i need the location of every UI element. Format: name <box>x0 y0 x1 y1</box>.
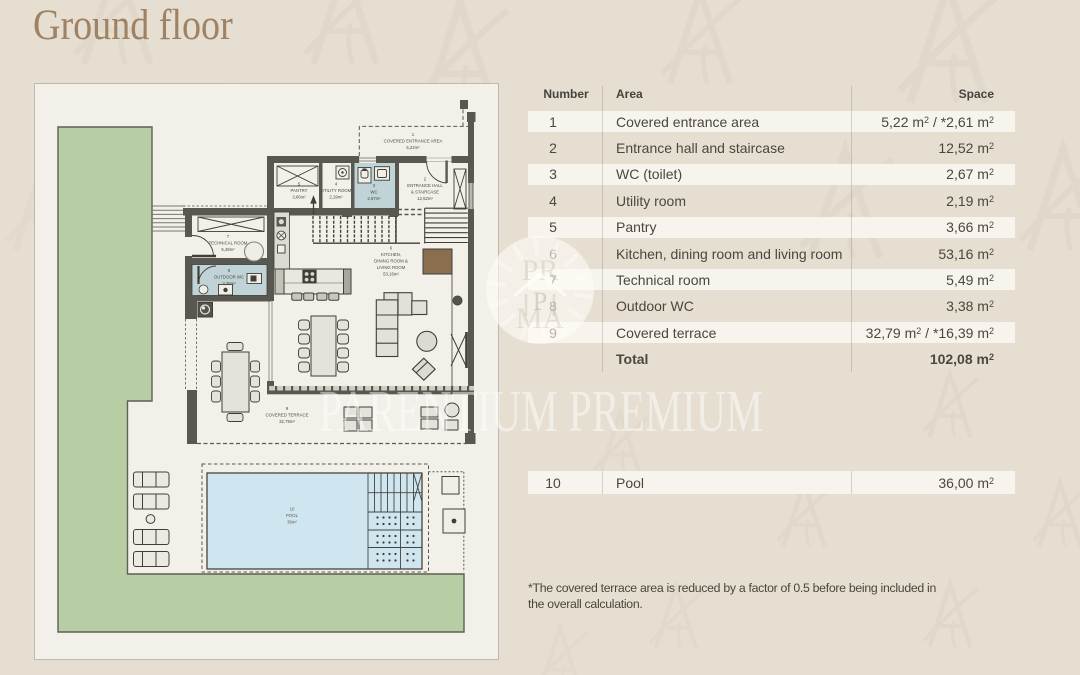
svg-text:7: 7 <box>227 234 230 239</box>
svg-text:KITCHEN,: KITCHEN, <box>381 252 401 257</box>
svg-text:2: 2 <box>424 177 427 182</box>
svg-text:POOL: POOL <box>286 513 299 518</box>
svg-text:53,16m²: 53,16m² <box>383 272 399 277</box>
svg-text:PANTRY: PANTRY <box>290 188 307 193</box>
svg-text:6: 6 <box>390 246 393 251</box>
svg-text:10: 10 <box>290 507 295 512</box>
svg-text:12,52m²: 12,52m² <box>417 196 433 201</box>
svg-text:2,67m²: 2,67m² <box>367 196 381 201</box>
svg-text:TECHNICAL ROOM: TECHNICAL ROOM <box>209 241 248 246</box>
svg-text:36m²: 36m² <box>287 520 297 525</box>
svg-text:ENTRANCE HALL: ENTRANCE HALL <box>407 183 443 188</box>
svg-text:DINING ROOM &: DINING ROOM & <box>374 259 408 264</box>
svg-text:5,22m²: 5,22m² <box>406 145 420 150</box>
svg-text:2,19m²: 2,19m² <box>329 195 343 200</box>
svg-text:3,66m²: 3,66m² <box>292 195 306 200</box>
svg-text:UTILITY ROOM: UTILITY ROOM <box>321 188 352 193</box>
svg-text:COVERED ENTRANCE AREA: COVERED ENTRANCE AREA <box>384 139 443 144</box>
svg-text:WC: WC <box>370 190 377 195</box>
svg-text:P: P <box>533 287 547 316</box>
svg-text:5,49m²: 5,49m² <box>221 247 235 252</box>
svg-text:PR: PR <box>522 254 559 287</box>
svg-text:LIVING ROOM: LIVING ROOM <box>377 265 406 270</box>
svg-text:32,79m²: 32,79m² <box>279 419 295 424</box>
svg-text:3,38m²: 3,38m² <box>222 281 236 286</box>
svg-text:1: 1 <box>412 132 415 137</box>
svg-text:& STAIRCASE: & STAIRCASE <box>411 190 439 195</box>
svg-text:OUTDOOR WC: OUTDOOR WC <box>214 275 244 280</box>
svg-text:4: 4 <box>335 182 338 187</box>
svg-text:COVERED TERRACE: COVERED TERRACE <box>266 413 309 418</box>
svg-text:9: 9 <box>286 406 289 411</box>
